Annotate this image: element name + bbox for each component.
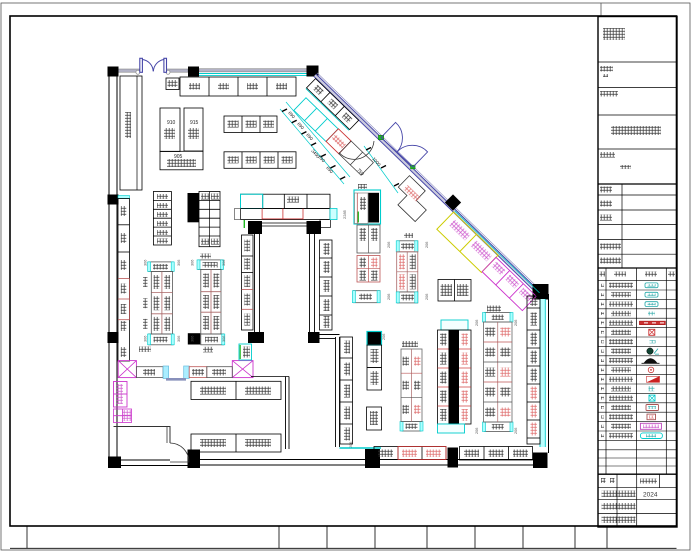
svg-text:306: 306 [177,336,181,342]
svg-text:915: 915 [190,120,199,126]
svg-text:306: 306 [177,260,181,266]
svg-text:306: 306 [222,336,226,342]
svg-text:206: 206 [475,320,479,326]
svg-text:206: 206 [475,428,479,434]
svg-text:2285: 2285 [342,209,347,219]
svg-text:306: 306 [144,336,148,342]
svg-text:306: 306 [191,260,195,266]
svg-text:2024: 2024 [643,492,658,499]
svg-text:206: 206 [425,294,429,300]
svg-text:206: 206 [425,242,429,248]
svg-text:206: 206 [387,294,391,300]
svg-text:306: 306 [191,336,195,342]
svg-text:306: 306 [144,260,148,266]
svg-text:206: 206 [514,428,518,434]
svg-text:306: 306 [222,260,226,266]
svg-text:206: 206 [382,334,386,340]
svg-text:910: 910 [167,120,176,126]
svg-text:206: 206 [514,320,518,326]
svg-text:206: 206 [387,242,391,248]
